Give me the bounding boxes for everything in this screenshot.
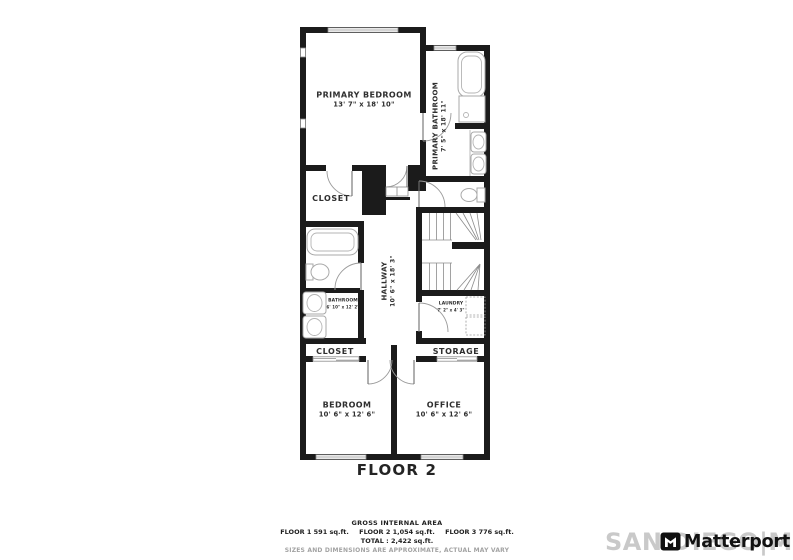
total-area: TOTAL : 2,422 sq.ft. <box>261 537 533 545</box>
room-label-primary-bathroom: PRIMARY BATHROOM 7' 5" x 18' 11" <box>432 82 449 170</box>
room-label-hallway: HALLWAY 10' 6" x 18' 3" <box>381 255 398 307</box>
staircase-icon <box>422 213 481 290</box>
matterport-icon <box>660 531 681 552</box>
disclaimer-text: SIZES AND DIMENSIONS ARE APPROXIMATE, AC… <box>261 547 533 554</box>
dryer-icon <box>466 317 485 335</box>
shower-icon <box>459 96 485 122</box>
room-label-laundry: LAUNDRY 7' 2" x 4' 3" <box>437 301 464 312</box>
floor-areas-line: FLOOR 1 591 sq.ft. FLOOR 2 1,054 sq.ft. … <box>261 528 533 536</box>
floor1-area: FLOOR 1 591 sq.ft. <box>280 528 349 536</box>
matterport-logo: Matterport <box>660 531 790 552</box>
sink-icon <box>303 316 326 338</box>
floor3-area: FLOOR 3 776 sq.ft. <box>445 528 514 536</box>
matterport-logo-text: Matterport <box>684 532 790 552</box>
room-label-office: OFFICE 10' 6" x 12' 6" <box>416 400 472 419</box>
gross-area-title: GROSS INTERNAL AREA <box>261 519 533 527</box>
floor-title: FLOOR 2 <box>357 461 437 479</box>
bathtub-icon <box>458 52 485 97</box>
washer-icon <box>466 297 485 315</box>
room-label-storage: STORAGE <box>433 347 480 357</box>
floor2-area: FLOOR 2 1,054 sq.ft. <box>359 528 435 536</box>
sink-icon <box>303 292 326 314</box>
room-label-closet-lower: CLOSET <box>316 347 354 357</box>
room-label-bedroom: BEDROOM 10' 6" x 12' 6" <box>319 400 375 419</box>
room-label-bathroom: BATHROOM 6' 10" x 12' 2" <box>327 298 360 309</box>
toilet-icon <box>477 188 485 202</box>
gross-area-summary: GROSS INTERNAL AREA FLOOR 1 591 sq.ft. F… <box>261 519 533 554</box>
room-label-primary-bedroom: PRIMARY BEDROOM 13' 7" x 18' 10" <box>316 90 411 109</box>
floorplan-drawing <box>295 20 495 465</box>
room-label-closet-upper: CLOSET <box>312 194 350 204</box>
